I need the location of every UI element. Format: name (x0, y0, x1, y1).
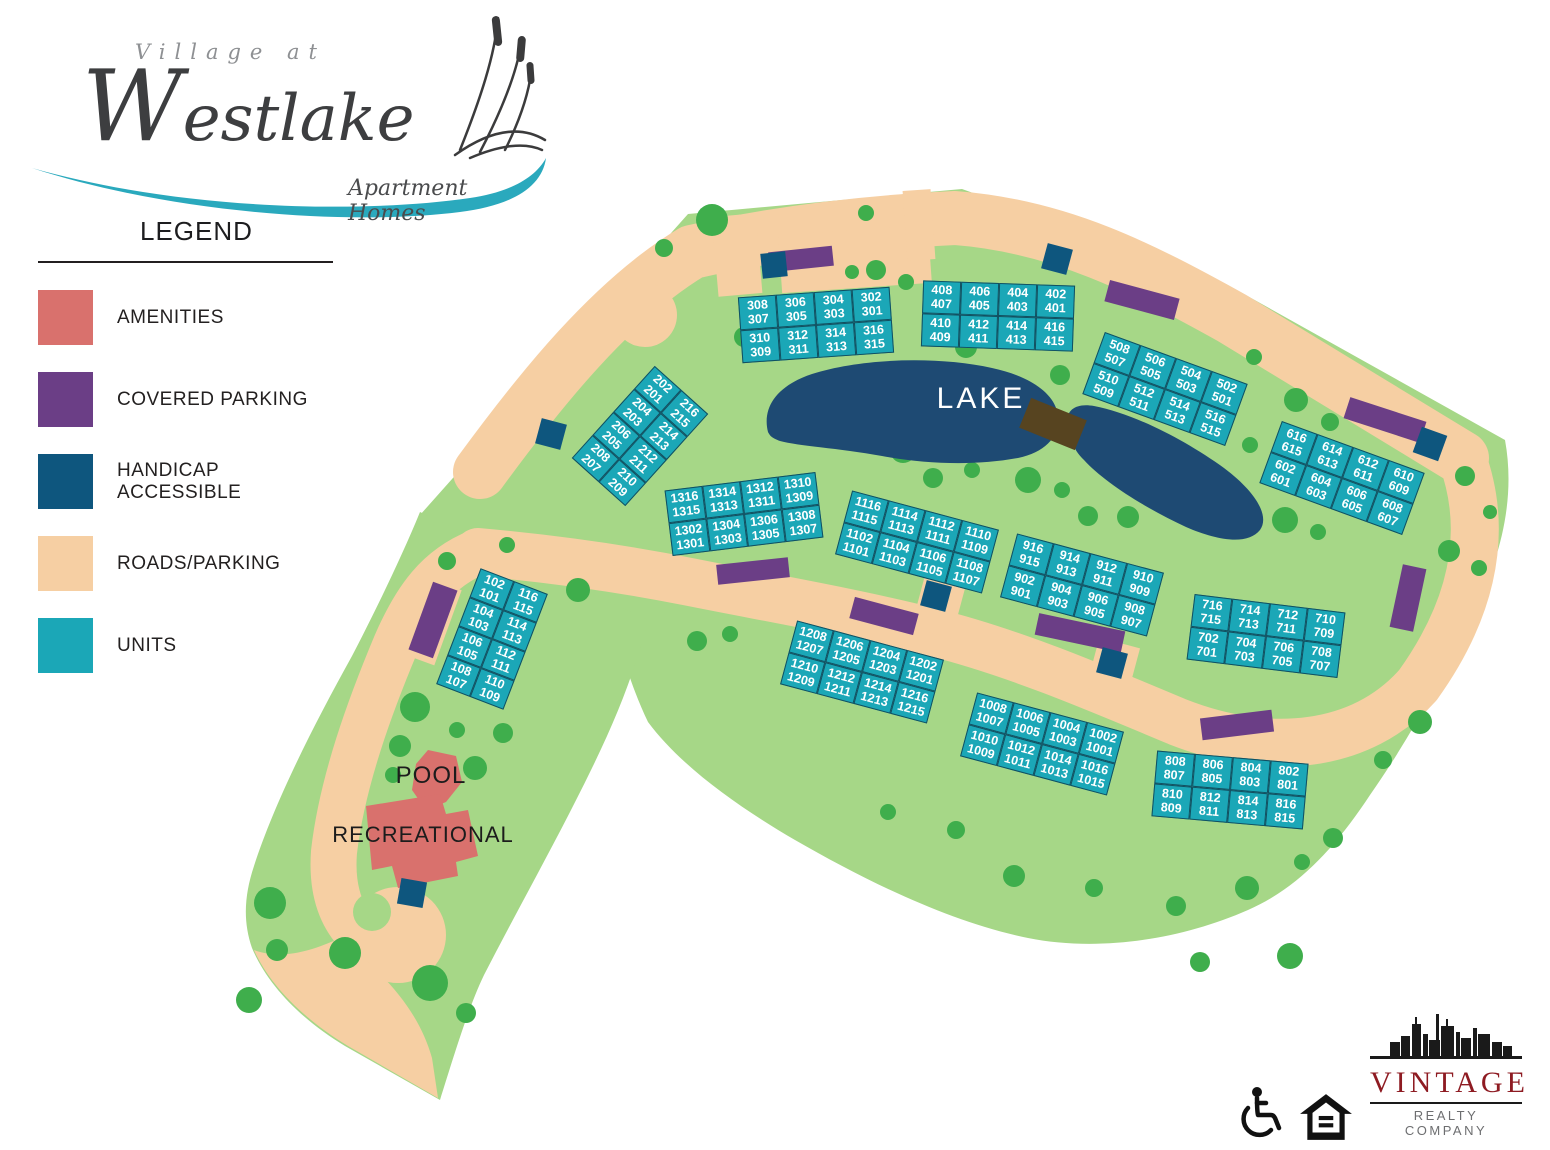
property-logo: Village at Westlake Apartment Homes (30, 8, 550, 218)
unit-408-407: 408407 (922, 280, 961, 314)
unit-308-307: 308307 (738, 295, 778, 331)
legend-item-label: UNITS (117, 635, 177, 657)
building-300: 3083073063053043033023013103093123113143… (738, 287, 894, 363)
unit-714-713: 714713 (1228, 599, 1270, 636)
roads-parking-swatch (38, 536, 93, 591)
handicap-spot-7 (397, 878, 427, 908)
handicap-swatch (38, 454, 93, 509)
lake-label: LAKE (937, 382, 1026, 416)
legend-item-handicap: HANDICAP ACCESSIBLE (38, 454, 338, 509)
unit-808-807: 808807 (1154, 751, 1195, 787)
unit-306-305: 306305 (776, 292, 816, 328)
legend-divider (38, 261, 333, 263)
unit-1312-1311: 13121311 (740, 477, 782, 514)
unit-804-803: 804803 (1230, 757, 1271, 793)
equal-housing-icon (1298, 1092, 1354, 1142)
unit-708-707: 708707 (1300, 641, 1342, 678)
unit-704-703: 704703 (1224, 631, 1266, 668)
cattails-icon (450, 10, 550, 160)
vintage-realty-logo: VINTAGE REALTY COMPANY (1370, 1012, 1522, 1142)
unit-402-401: 402401 (1036, 284, 1075, 318)
unit-1302-1301: 13021301 (669, 519, 711, 556)
legend-item-amenities: AMENITIES (38, 290, 338, 345)
unit-410-409: 410409 (921, 313, 960, 347)
unit-814-813: 814813 (1227, 790, 1268, 826)
unit-1304-1303: 13041303 (706, 514, 748, 551)
unit-702-701: 702701 (1187, 627, 1229, 664)
legend-item-label: COVERED PARKING (117, 389, 308, 411)
recreational-label: RECREATIONAL (332, 822, 514, 848)
legend-title: LEGEND (140, 216, 338, 247)
legend-item-label: HANDICAP ACCESSIBLE (117, 460, 338, 504)
unit-404-403: 404403 (998, 283, 1037, 317)
unit-304-303: 304303 (814, 289, 854, 325)
amenities-swatch (38, 290, 93, 345)
unit-406-405: 406405 (960, 282, 999, 316)
legend: LEGEND AMENITIES COVERED PARKING HANDICA… (38, 216, 338, 673)
unit-806-805: 806805 (1192, 754, 1233, 790)
unit-802-801: 802801 (1268, 760, 1309, 796)
pool-label: POOL (396, 762, 467, 790)
unit-706-705: 706705 (1262, 636, 1304, 673)
unit-414-413: 414413 (997, 316, 1036, 350)
logo-tagline: Apartment Homes (348, 176, 550, 226)
unit-416-415: 416415 (1035, 317, 1074, 351)
unit-1308-1307: 13081307 (782, 505, 824, 542)
unit-810-809: 810809 (1151, 783, 1192, 819)
building-400: 4084074064054044034024014104094124114144… (921, 280, 1075, 351)
legend-item-roads-parking: ROADS/PARKING (38, 536, 338, 591)
unit-1316-1315: 13161315 (665, 486, 707, 523)
unit-310-309: 310309 (740, 328, 780, 364)
unit-412-411: 412411 (959, 315, 998, 349)
footer: VINTAGE REALTY COMPANY (1232, 1012, 1522, 1142)
logo-wordmark: Westlake (82, 56, 414, 159)
unit-1310-1309: 13101309 (778, 472, 820, 509)
vintage-brand: VINTAGE (1370, 1066, 1522, 1100)
covered-parking-swatch (38, 372, 93, 427)
unit-316-315: 316315 (854, 320, 894, 356)
legend-item-label: ROADS/PARKING (117, 553, 280, 575)
unit-816-815: 816815 (1265, 793, 1306, 829)
unit-302-301: 302301 (852, 287, 892, 323)
unit-712-711: 712711 (1266, 603, 1308, 640)
unit-1306-1305: 13061305 (744, 509, 786, 546)
unit-314-313: 314313 (816, 322, 856, 358)
city-skyline-icon (1370, 1012, 1522, 1060)
unit-710-709: 710709 (1304, 608, 1346, 645)
legend-item-covered-parking: COVERED PARKING (38, 372, 338, 427)
building-800: 8088078068058048038028018108098128118148… (1151, 751, 1308, 830)
unit-312-311: 312311 (778, 325, 818, 361)
unit-716-715: 716715 (1191, 594, 1233, 631)
handicap-spot-1 (760, 251, 787, 278)
unit-812-811: 812811 (1189, 787, 1230, 823)
units-swatch (38, 618, 93, 673)
vintage-subtitle: REALTY COMPANY (1370, 1108, 1522, 1142)
unit-1314-1313: 13141313 (702, 481, 744, 518)
vintage-divider (1370, 1102, 1522, 1104)
site-map-page: 1021011161151041031141131061051121111081… (0, 0, 1550, 1150)
legend-item-units: UNITS (38, 618, 338, 673)
handicap-accessible-icon (1232, 1084, 1282, 1142)
legend-item-label: AMENITIES (117, 307, 224, 329)
